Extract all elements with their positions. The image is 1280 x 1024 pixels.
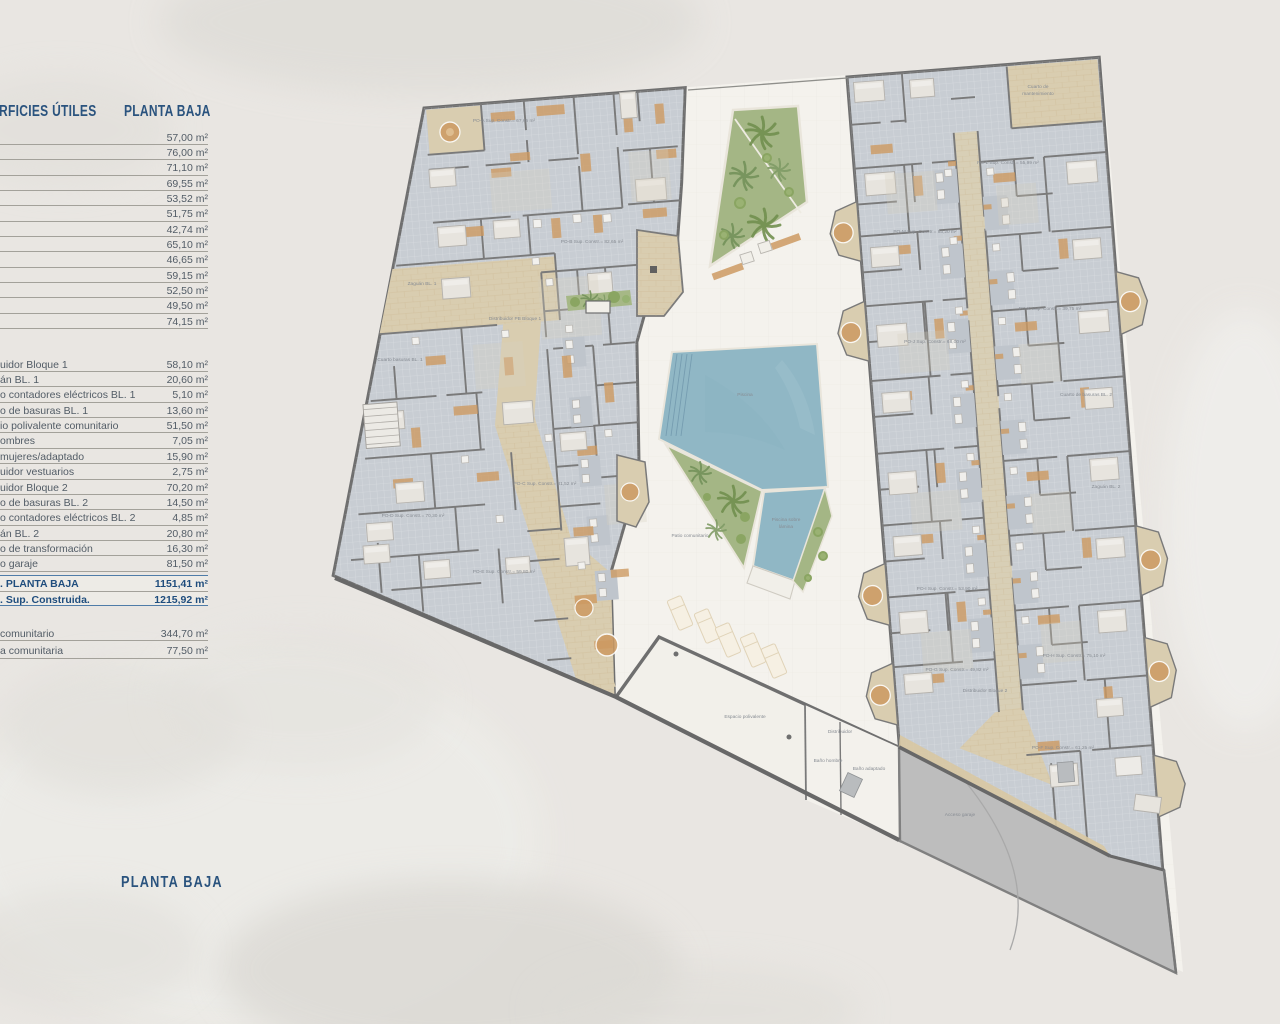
svg-text:Piscina: Piscina [737, 392, 753, 398]
svg-text:PO-E Sup. Constr.= 59,80 m²: PO-E Sup. Constr.= 59,80 m² [473, 569, 536, 575]
svg-text:Acceso garaje: Acceso garaje [945, 812, 976, 818]
svg-text:PO-L Sup. Constr.= 55,99 m²: PO-L Sup. Constr.= 55,99 m² [977, 160, 1039, 166]
svg-text:PO-H Sup. Constr.= 75,10 m²: PO-H Sup. Constr.= 75,10 m² [1043, 653, 1106, 659]
svg-text:Distribuidor: Distribuidor [828, 729, 853, 735]
svg-text:Zaguán BL. 2: Zaguán BL. 2 [1092, 484, 1121, 490]
svg-text:Cuarto de: Cuarto de [1027, 84, 1048, 90]
svg-text:Cuarto de basuras BL. 2: Cuarto de basuras BL. 2 [1060, 392, 1112, 398]
svg-text:PO-B Sup. Constr.= 82,65 m²: PO-B Sup. Constr.= 82,65 m² [561, 239, 624, 245]
svg-text:Cuarto basuras BL. 1: Cuarto basuras BL. 1 [377, 357, 423, 363]
svg-text:Distribuidor PB Bloque 1: Distribuidor PB Bloque 1 [489, 316, 542, 322]
svg-text:Patio comunitario: Patio comunitario [671, 533, 708, 539]
svg-text:PO-M Sup. Constr.= 83,20 m²: PO-M Sup. Constr.= 83,20 m² [893, 229, 957, 235]
svg-text:PO-A Sup. Constr.= 67,65 m²: PO-A Sup. Constr.= 67,65 m² [473, 118, 536, 124]
svg-text:Piscina sobre: Piscina sobre [772, 517, 801, 523]
svg-text:Espacio polivalente: Espacio polivalente [724, 714, 766, 720]
svg-text:mantenimiento: mantenimiento [1022, 91, 1054, 97]
svg-text:PO-J Sup. Constr.= 68,00 m²: PO-J Sup. Constr.= 68,00 m² [904, 339, 966, 345]
svg-text:Baño adaptado: Baño adaptado [853, 766, 886, 772]
svg-text:Distribuidor Bloque 2: Distribuidor Bloque 2 [963, 688, 1008, 694]
svg-text:Baño hombre: Baño hombre [814, 758, 843, 764]
svg-text:PO-D Sup. Constr.= 70,30 m²: PO-D Sup. Constr.= 70,30 m² [382, 513, 445, 519]
svg-text:Zaguán BL. 1: Zaguán BL. 1 [408, 281, 437, 287]
svg-text:PO-F Sup. Constr.= 61,25 m²: PO-F Sup. Constr.= 61,25 m² [1032, 745, 1095, 751]
svg-text:PO-I Sup. Constr.= 53,90 m²: PO-I Sup. Constr.= 53,90 m² [917, 586, 978, 592]
svg-text:PO-G Sup. Constr.= 49,82 m²: PO-G Sup. Constr.= 49,82 m² [925, 667, 988, 673]
svg-text:PO-K Sup. Constr.= 39,75 m²: PO-K Sup. Constr.= 39,75 m² [1019, 306, 1082, 312]
svg-text:PO-C Sup. Constr.= 81,52 m²: PO-C Sup. Constr.= 81,52 m² [514, 481, 577, 487]
svg-text:lámina: lámina [779, 524, 793, 530]
